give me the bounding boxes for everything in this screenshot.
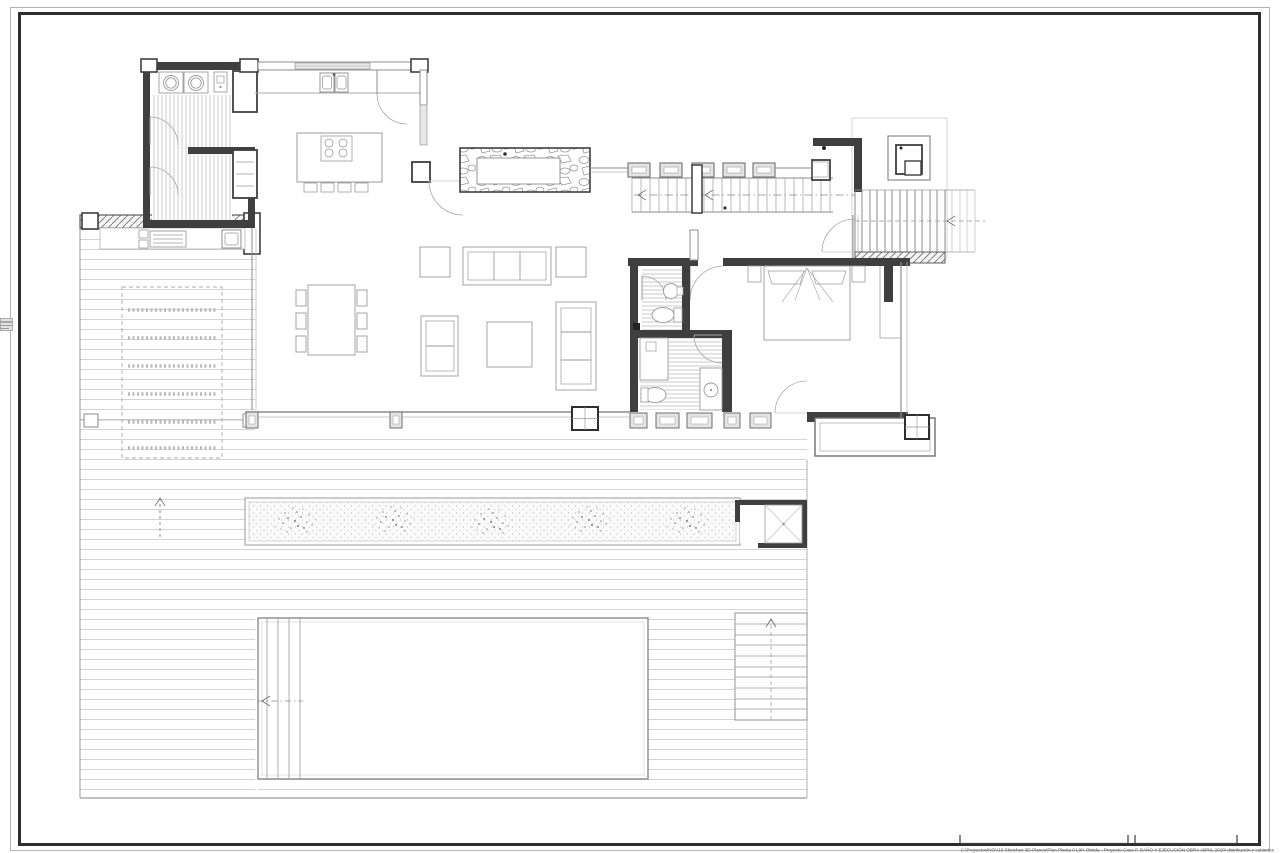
side-table xyxy=(420,247,450,277)
small-appliance xyxy=(214,72,227,92)
sheet-footer: C:\Proyectos\NOV19 Sketches 3D-Planos\Pl… xyxy=(960,835,1275,853)
drawing-sheet: C:\Proyectos\NOV19 Sketches 3D-Planos\Pl… xyxy=(0,0,1280,853)
swimming-pool xyxy=(258,618,648,779)
sofa-set xyxy=(420,247,596,390)
dining-table xyxy=(296,285,367,355)
side-table xyxy=(556,247,586,277)
washer-dryer xyxy=(159,72,208,93)
scale-bar xyxy=(960,835,1128,844)
bedroom-window-sills xyxy=(630,413,771,428)
loveseat xyxy=(421,316,458,376)
kitchen-island xyxy=(297,133,382,192)
left-edge-reference-tab xyxy=(1,319,13,331)
sofa-three-seat xyxy=(463,247,551,285)
sofa-two-seat xyxy=(556,302,596,390)
bbq-unit xyxy=(888,136,930,180)
living-room xyxy=(252,228,596,410)
toilet xyxy=(652,308,682,323)
outdoor-shower xyxy=(735,500,807,548)
fireplace xyxy=(460,148,590,192)
nightstand xyxy=(748,266,761,282)
shower xyxy=(700,368,722,410)
bed xyxy=(748,266,865,340)
kitchen xyxy=(255,59,463,215)
scale-bar xyxy=(1135,835,1237,844)
terrace xyxy=(815,415,935,456)
terrace-column-cross xyxy=(905,415,929,439)
nightstand xyxy=(852,266,865,282)
island-stools xyxy=(304,183,368,192)
planter-strip xyxy=(245,498,740,545)
outdoor-sink xyxy=(222,230,241,248)
entry-area xyxy=(812,118,985,263)
pillow xyxy=(812,271,846,284)
bathroom-upper xyxy=(630,262,690,332)
grill xyxy=(150,231,186,247)
pool-staircase xyxy=(735,613,807,720)
toilet xyxy=(641,388,666,403)
vanity xyxy=(640,338,668,380)
column-cross xyxy=(572,407,598,430)
coffee-table xyxy=(487,322,532,367)
kitchen-sink xyxy=(320,73,348,92)
laundry-room xyxy=(141,59,258,228)
floor-plan-canvas: C:\Proyectos\NOV19 Sketches 3D-Planos\Pl… xyxy=(0,0,1280,853)
pillow xyxy=(768,271,804,284)
bathroom-lower xyxy=(630,330,732,412)
file-path-text: C:\Proyectos\NOV19 Sketches 3D-Planos\Pl… xyxy=(961,847,1275,853)
entry-staircase xyxy=(855,190,985,263)
